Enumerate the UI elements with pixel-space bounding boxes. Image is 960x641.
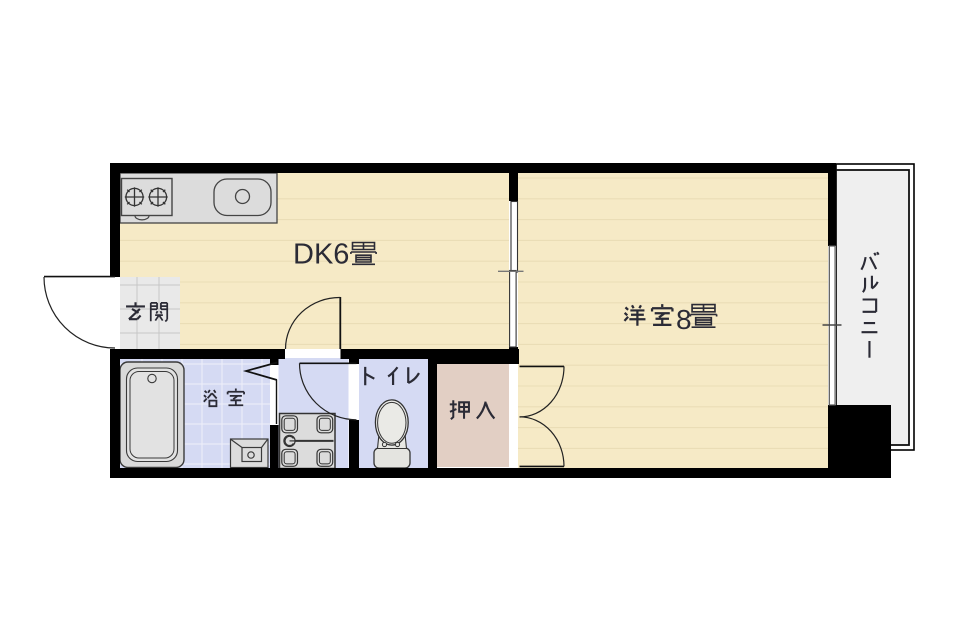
svg-text:8: 8 xyxy=(676,304,692,335)
svg-text:DK6: DK6 xyxy=(293,239,349,271)
